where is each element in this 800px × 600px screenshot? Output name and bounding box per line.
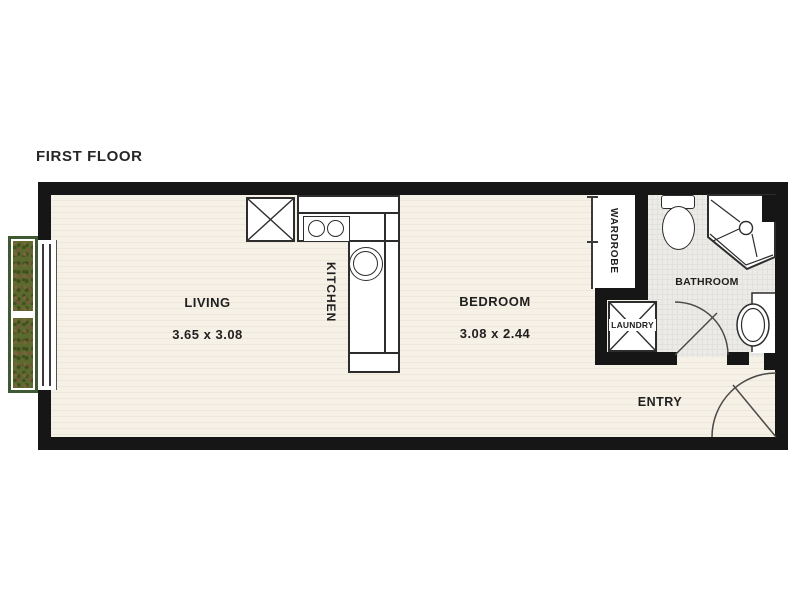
- wall-wardrobe-bathroom: [635, 195, 648, 290]
- window-pane-line: [49, 244, 51, 386]
- laundry-label: LAUNDRY: [606, 320, 659, 330]
- counter-edge-line: [349, 352, 400, 354]
- door-tick: [587, 241, 598, 243]
- entry-label: ENTRY: [625, 395, 695, 409]
- living-label: LIVING: [150, 295, 265, 310]
- page-title: FIRST FLOOR: [36, 148, 196, 165]
- kitchen-sink-symbol: [349, 247, 383, 281]
- cooktop-symbol: [303, 216, 350, 242]
- floorplan-page: { "title": "FIRST FLOOR", "rooms": { "li…: [0, 0, 800, 600]
- burner-icon: [327, 220, 344, 237]
- wall-bathroom-entry-corner: [764, 349, 788, 370]
- plant-bed-top: [13, 241, 33, 311]
- toilet-bowl: [662, 206, 695, 250]
- bathroom-label: BATHROOM: [660, 276, 754, 288]
- wardrobe-sliding-door: [591, 197, 593, 289]
- bedroom-label: BEDROOM: [435, 294, 555, 309]
- kitchen-label: KITCHEN: [324, 246, 338, 338]
- wall-laundry-bottom: [595, 352, 660, 365]
- plant-bed-bottom: [13, 318, 33, 388]
- sink-bowl: [353, 251, 378, 276]
- wardrobe-label: WARDROBE: [608, 199, 619, 283]
- window-pane-line: [42, 244, 44, 386]
- window-symbol: [38, 240, 57, 390]
- planter-box: [8, 236, 38, 393]
- living-dimensions: 3.65 x 3.08: [150, 327, 265, 342]
- burner-icon: [308, 220, 325, 237]
- door-tick: [587, 196, 598, 198]
- wall-bathroom-entry-left: [657, 352, 677, 365]
- window-inner-edge: [56, 240, 57, 390]
- wall-bathroom-entry-right: [727, 352, 749, 365]
- counter-edge-line: [384, 214, 386, 353]
- bedroom-dimensions: 3.08 x 2.44: [435, 326, 555, 341]
- fridge-symbol: [246, 197, 295, 242]
